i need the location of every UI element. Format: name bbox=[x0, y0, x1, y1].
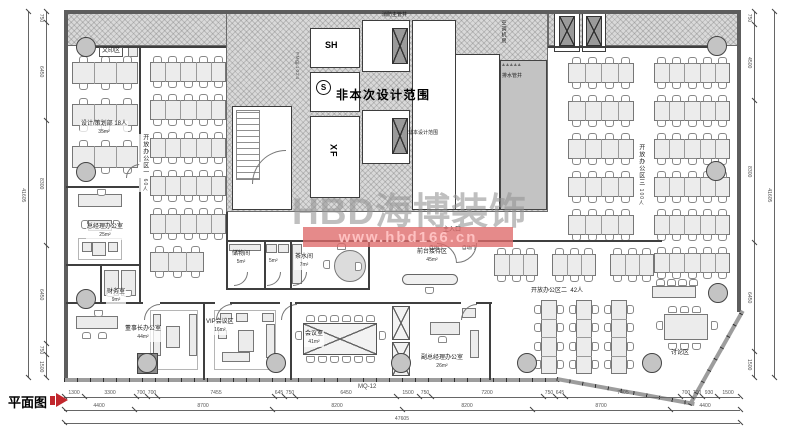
chair bbox=[688, 272, 697, 279]
chair bbox=[354, 315, 363, 322]
floor-plan-canvas: 1300330070070074556457506450150075072007… bbox=[0, 0, 800, 441]
ac-room-label: 空调机房 bbox=[500, 20, 507, 44]
furniture bbox=[586, 16, 602, 46]
washroom-area: 5m² bbox=[269, 258, 278, 264]
chair bbox=[718, 196, 727, 203]
chair bbox=[605, 171, 614, 178]
open2-name: 开放办公区二 bbox=[531, 288, 567, 294]
chair bbox=[692, 343, 701, 350]
vice-gm-name: 副总经理办公室 bbox=[421, 355, 463, 361]
wall bbox=[264, 242, 266, 290]
chair bbox=[604, 323, 611, 332]
chair bbox=[214, 208, 223, 215]
chair bbox=[534, 323, 541, 332]
dim-line bbox=[64, 397, 740, 398]
chair bbox=[680, 343, 689, 350]
desk-divider bbox=[196, 214, 197, 234]
desk-divider bbox=[165, 214, 166, 234]
desk-divider bbox=[700, 177, 701, 197]
chair bbox=[318, 315, 327, 322]
chair bbox=[688, 209, 697, 216]
chair bbox=[657, 196, 666, 203]
room-label-reception: 前台接待区 45m² bbox=[417, 249, 447, 265]
dim-value: 8200 bbox=[454, 403, 480, 408]
chair bbox=[526, 248, 535, 255]
chair bbox=[688, 158, 697, 165]
chair bbox=[342, 315, 351, 322]
desk-divider bbox=[700, 139, 701, 159]
desk-divider bbox=[180, 176, 181, 196]
desk-divider bbox=[669, 253, 670, 273]
desk-divider bbox=[211, 138, 212, 158]
desk-divider bbox=[601, 139, 602, 159]
title-arrow-icon bbox=[56, 393, 68, 407]
room-label-print-area: 文印区 bbox=[99, 47, 123, 57]
wall-outer-left bbox=[64, 10, 68, 382]
furniture bbox=[229, 244, 261, 251]
chair bbox=[168, 195, 177, 202]
chair bbox=[82, 332, 91, 339]
desk-divider bbox=[211, 214, 212, 234]
chair bbox=[199, 195, 208, 202]
chair bbox=[101, 56, 110, 63]
chair bbox=[570, 275, 579, 282]
desk-divider bbox=[669, 177, 670, 197]
chair bbox=[627, 323, 634, 332]
chair bbox=[657, 247, 666, 254]
chair bbox=[153, 170, 162, 177]
dim-value: 750 bbox=[277, 390, 303, 395]
chair bbox=[425, 287, 434, 294]
chair bbox=[97, 189, 106, 196]
chair bbox=[605, 209, 614, 216]
title-red-bar bbox=[50, 396, 55, 405]
chair bbox=[621, 57, 630, 64]
desk-divider bbox=[639, 254, 640, 276]
desk-divider bbox=[541, 337, 557, 338]
zigzag-strip: ▲▲▲▲▲ bbox=[501, 62, 521, 68]
chair bbox=[605, 57, 614, 64]
drain-shaft-label: 排水管井 bbox=[502, 73, 522, 80]
chair bbox=[688, 120, 697, 127]
gm-area: 25m² bbox=[99, 232, 110, 238]
desk-bank bbox=[150, 252, 204, 272]
open3-count: 100人 bbox=[638, 189, 644, 206]
chair bbox=[572, 95, 581, 102]
wall bbox=[139, 178, 141, 304]
room-label-gm-office: 总经理办公室 25m² bbox=[86, 224, 124, 240]
dim-value: 4400 bbox=[692, 403, 718, 408]
dim-value: 4400 bbox=[86, 403, 112, 408]
wall bbox=[203, 302, 205, 380]
dim-value: 1500 bbox=[38, 354, 43, 380]
chair bbox=[627, 360, 634, 369]
vice-gm-area: 26m² bbox=[436, 363, 447, 369]
wall bbox=[230, 302, 280, 304]
design-dept-name: 设计/策划部 18人 bbox=[81, 121, 127, 127]
fire-shaft-label: 消防主管井 bbox=[382, 12, 407, 19]
chair bbox=[672, 272, 681, 279]
desk-divider bbox=[585, 63, 586, 83]
column bbox=[76, 162, 96, 182]
column bbox=[517, 353, 537, 373]
door-arc bbox=[281, 304, 297, 320]
chair bbox=[627, 342, 634, 351]
dim-value: 8700 bbox=[588, 403, 614, 408]
chair bbox=[689, 279, 698, 286]
chair bbox=[184, 208, 193, 215]
dim-value: 6450 bbox=[333, 390, 359, 395]
dim-value: 8300 bbox=[746, 159, 751, 185]
desk-divider bbox=[165, 62, 166, 82]
furniture bbox=[266, 244, 277, 253]
chair bbox=[588, 209, 597, 216]
chair bbox=[672, 234, 681, 241]
chair bbox=[98, 332, 107, 339]
chair bbox=[214, 56, 223, 63]
desk-bank bbox=[150, 214, 226, 234]
desk-divider bbox=[601, 215, 602, 235]
furniture bbox=[278, 244, 289, 253]
chair bbox=[191, 271, 200, 278]
chair bbox=[688, 171, 697, 178]
storage-name: 储物间 bbox=[232, 251, 250, 257]
tea-name: 茶水间 bbox=[295, 254, 313, 260]
wall bbox=[226, 212, 228, 290]
dim-value: 700 bbox=[139, 390, 165, 395]
chair bbox=[703, 95, 712, 102]
chair bbox=[621, 120, 630, 127]
design-dept-area: 35m² bbox=[98, 129, 109, 135]
chair bbox=[557, 323, 564, 332]
chair bbox=[173, 271, 182, 278]
chair bbox=[588, 158, 597, 165]
desk-divider bbox=[165, 138, 166, 158]
chair bbox=[588, 196, 597, 203]
chair bbox=[657, 95, 666, 102]
desk-divider bbox=[211, 176, 212, 196]
chair bbox=[718, 57, 727, 64]
chair bbox=[168, 170, 177, 177]
chair bbox=[672, 95, 681, 102]
chair bbox=[168, 233, 177, 240]
chair bbox=[199, 132, 208, 139]
room-label-open-office-3: 开放办公区三 100人 bbox=[635, 144, 645, 206]
chair bbox=[718, 234, 727, 241]
chair bbox=[153, 195, 162, 202]
desk-divider bbox=[576, 337, 592, 338]
desk-divider bbox=[581, 254, 582, 276]
desk-bank bbox=[150, 62, 226, 82]
desk-divider bbox=[116, 146, 117, 168]
chair bbox=[592, 360, 599, 369]
desk-divider bbox=[585, 177, 586, 197]
desk-bank bbox=[654, 101, 730, 121]
chair bbox=[214, 170, 223, 177]
dim-value: 750 bbox=[38, 5, 43, 31]
column bbox=[706, 161, 726, 181]
chair bbox=[668, 343, 677, 350]
meeting-name: 会议室 bbox=[305, 331, 323, 337]
desk-divider bbox=[601, 177, 602, 197]
desk-divider bbox=[585, 215, 586, 235]
desk-divider bbox=[180, 100, 181, 120]
furniture bbox=[559, 16, 575, 46]
chair bbox=[703, 120, 712, 127]
dim-line bbox=[774, 12, 775, 378]
chair bbox=[295, 331, 302, 340]
chair bbox=[101, 83, 110, 90]
chair bbox=[214, 81, 223, 88]
chair bbox=[688, 196, 697, 203]
chair bbox=[718, 272, 727, 279]
door-arc bbox=[144, 304, 160, 320]
room-label-storage: 储物间 5m² bbox=[231, 251, 251, 267]
chair bbox=[688, 95, 697, 102]
chair bbox=[656, 321, 663, 330]
chair bbox=[330, 356, 339, 363]
chair bbox=[657, 120, 666, 127]
furniture bbox=[402, 274, 458, 285]
furniture bbox=[222, 352, 250, 362]
chair bbox=[657, 158, 666, 165]
desk-divider bbox=[186, 252, 187, 272]
dim-value: 1500 bbox=[716, 390, 742, 395]
chair bbox=[692, 306, 701, 313]
chair bbox=[79, 98, 88, 105]
chair bbox=[688, 234, 697, 241]
desk-bank bbox=[610, 254, 654, 276]
desk-bank bbox=[654, 215, 730, 235]
room-label-meeting: 会议室 41m² bbox=[304, 331, 324, 347]
chair bbox=[672, 133, 681, 140]
chair bbox=[572, 209, 581, 216]
chair bbox=[588, 120, 597, 127]
room-label-open-office-2: 开放办公区二 42人 bbox=[530, 288, 584, 296]
door-arc bbox=[461, 304, 477, 320]
chair bbox=[642, 275, 651, 282]
desk-divider bbox=[541, 356, 557, 357]
door-arc bbox=[267, 272, 281, 286]
chair bbox=[512, 275, 521, 282]
chair bbox=[569, 305, 576, 314]
chair bbox=[214, 132, 223, 139]
tea-area: 7m² bbox=[300, 262, 309, 268]
desk-divider bbox=[715, 63, 716, 83]
room-label-washroom: 5m² bbox=[268, 258, 279, 266]
desk-divider bbox=[196, 176, 197, 196]
chair bbox=[572, 133, 581, 140]
dim-value: 3300 bbox=[97, 390, 123, 395]
finance-area: 9m² bbox=[112, 297, 121, 303]
chair bbox=[592, 323, 599, 332]
chair bbox=[557, 360, 564, 369]
desk-divider bbox=[567, 254, 568, 276]
chair bbox=[214, 195, 223, 202]
chair bbox=[306, 315, 315, 322]
chair bbox=[584, 248, 593, 255]
chair bbox=[555, 248, 564, 255]
chairman-area: 44m² bbox=[137, 334, 148, 340]
chair bbox=[123, 98, 132, 105]
chair bbox=[642, 248, 651, 255]
elevator-xf-label: XF bbox=[327, 144, 339, 158]
chair bbox=[672, 247, 681, 254]
desk-bank bbox=[654, 63, 730, 83]
furniture bbox=[82, 242, 92, 252]
chair bbox=[588, 133, 597, 140]
chair bbox=[79, 140, 88, 147]
desk-divider bbox=[669, 215, 670, 235]
chair bbox=[497, 275, 506, 282]
chair bbox=[703, 57, 712, 64]
dim-value: 7405 bbox=[610, 390, 636, 395]
chair bbox=[497, 248, 506, 255]
desk-divider bbox=[523, 254, 524, 276]
desk-divider bbox=[196, 62, 197, 82]
chair bbox=[155, 246, 164, 253]
open3-name: 开放办公区三 bbox=[638, 144, 644, 186]
chair bbox=[199, 94, 208, 101]
chair bbox=[366, 315, 375, 322]
chair bbox=[153, 119, 162, 126]
chair bbox=[168, 81, 177, 88]
chair bbox=[657, 171, 666, 178]
chair bbox=[168, 157, 177, 164]
chair bbox=[214, 233, 223, 240]
desk-bank bbox=[654, 253, 730, 273]
room-label-design-dept: 设计/策划部 18人 35m² bbox=[80, 121, 128, 137]
wall bbox=[66, 264, 139, 266]
wall bbox=[290, 302, 292, 380]
chair bbox=[672, 171, 681, 178]
chair bbox=[534, 342, 541, 351]
chair bbox=[306, 356, 315, 363]
chair bbox=[592, 342, 599, 351]
chair bbox=[621, 171, 630, 178]
desk-divider bbox=[576, 356, 592, 357]
room-label-chairman: 董事长办公室 44m² bbox=[124, 326, 162, 342]
chair bbox=[155, 271, 164, 278]
furniture bbox=[392, 306, 410, 340]
column bbox=[391, 353, 411, 373]
chair bbox=[123, 83, 132, 90]
chair bbox=[168, 56, 177, 63]
chair bbox=[184, 195, 193, 202]
desk-divider bbox=[116, 62, 117, 84]
desk-bank bbox=[72, 62, 138, 84]
chair bbox=[718, 95, 727, 102]
dim-value: 6450 bbox=[746, 285, 751, 311]
chair bbox=[354, 356, 363, 363]
wall bbox=[66, 186, 139, 188]
chair bbox=[588, 171, 597, 178]
wall bbox=[548, 46, 710, 48]
desk-divider bbox=[585, 139, 586, 159]
column bbox=[137, 353, 157, 373]
chair bbox=[628, 275, 637, 282]
chair bbox=[688, 82, 697, 89]
dim-line bbox=[28, 12, 29, 378]
chair bbox=[438, 336, 447, 343]
chair bbox=[570, 248, 579, 255]
desk-divider bbox=[611, 356, 627, 357]
desk-divider bbox=[684, 139, 685, 159]
chair bbox=[101, 167, 110, 174]
dim-value: 750 bbox=[746, 6, 751, 32]
desk-divider bbox=[165, 176, 166, 196]
storage-area: 5m² bbox=[237, 259, 246, 265]
furniture bbox=[238, 330, 254, 352]
chair bbox=[123, 56, 132, 63]
dim-value: 41605 bbox=[766, 182, 771, 208]
chair bbox=[657, 82, 666, 89]
chair bbox=[604, 342, 611, 351]
desk-divider bbox=[165, 100, 166, 120]
dim-value: 8200 bbox=[324, 403, 350, 408]
chair bbox=[703, 234, 712, 241]
chair bbox=[703, 209, 712, 216]
desk-divider bbox=[180, 214, 181, 234]
dim-value: 8700 bbox=[190, 403, 216, 408]
finance-name: 财务室 bbox=[107, 289, 125, 295]
desk-divider bbox=[715, 139, 716, 159]
chair bbox=[605, 82, 614, 89]
chair bbox=[657, 57, 666, 64]
chair bbox=[123, 140, 132, 147]
chair bbox=[672, 158, 681, 165]
furniture bbox=[262, 313, 274, 322]
chair bbox=[668, 306, 677, 313]
chair bbox=[672, 57, 681, 64]
chair bbox=[613, 275, 622, 282]
chair bbox=[605, 120, 614, 127]
chair bbox=[588, 95, 597, 102]
chair bbox=[672, 209, 681, 216]
dim-value: 645 bbox=[547, 390, 573, 395]
dim-value: 8300 bbox=[38, 171, 43, 197]
chair bbox=[184, 233, 193, 240]
desk-divider bbox=[700, 215, 701, 235]
desk-divider bbox=[585, 101, 586, 121]
chair bbox=[680, 306, 689, 313]
desk-divider bbox=[684, 215, 685, 235]
chair bbox=[184, 132, 193, 139]
desk-divider bbox=[611, 337, 627, 338]
door-arc bbox=[216, 304, 232, 320]
furniture bbox=[652, 286, 696, 298]
chair bbox=[199, 208, 208, 215]
chair bbox=[672, 120, 681, 127]
curtain-wall-label: MQ-12 bbox=[358, 384, 376, 392]
chair bbox=[184, 119, 193, 126]
desk-divider bbox=[509, 254, 510, 276]
chair bbox=[199, 56, 208, 63]
column bbox=[642, 353, 662, 373]
chair bbox=[557, 342, 564, 351]
chair bbox=[621, 158, 630, 165]
chair bbox=[572, 171, 581, 178]
desk-divider bbox=[180, 138, 181, 158]
chair bbox=[621, 82, 630, 89]
desk-divider bbox=[700, 253, 701, 273]
desk-bank bbox=[150, 138, 226, 158]
desk-divider bbox=[625, 254, 626, 276]
chair bbox=[557, 305, 564, 314]
room-label-finance: 财务室 9m² bbox=[106, 289, 126, 305]
desk-bank bbox=[654, 139, 730, 159]
chair bbox=[718, 120, 727, 127]
